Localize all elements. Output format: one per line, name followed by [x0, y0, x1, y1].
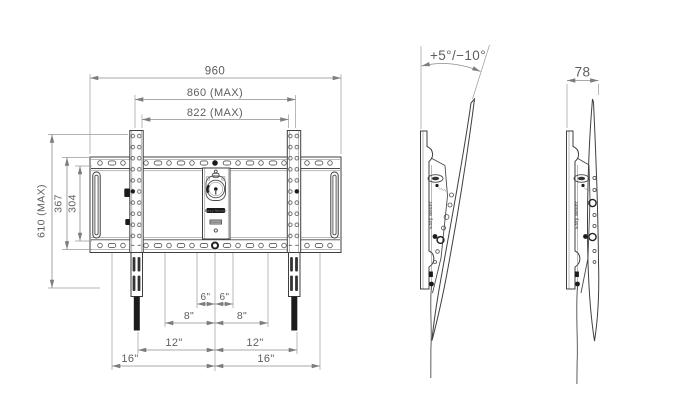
- center-lock-plate: Easy Mount: [203, 168, 231, 239]
- dim-depth: 78: [575, 65, 591, 80]
- left-arm-marked-hole: [131, 189, 135, 193]
- tv-bracket-blade-tilted: [432, 99, 475, 341]
- dim-inner-max-width: 822 (MAX): [187, 107, 243, 119]
- tilt-mechanism: Easy Mount: [428, 158, 454, 378]
- dim-tilt-angle: +5°/−10°: [430, 48, 486, 63]
- release-cord-straight: [577, 286, 578, 384]
- dim-inner-height: 304: [67, 194, 79, 213]
- side-view-straight: Easy Mount 78: [567, 65, 599, 385]
- dim-6in-right: 6": [220, 292, 230, 303]
- dim-12in-left: 12": [165, 337, 182, 349]
- tilt-angle-dimension: +5°/−10°: [421, 45, 490, 129]
- right-arm-rail-bar: [291, 297, 297, 331]
- right-arm: [287, 131, 300, 331]
- release-cord: [431, 286, 432, 378]
- wall-mount-drawing: Easy Mount 960 860 (MAX) 822 (MAX): [0, 0, 700, 417]
- dim-16in-left: 16": [121, 353, 138, 365]
- front-view: Easy Mount 960 860 (MAX) 822 (MAX): [36, 66, 342, 372]
- dim-16in-right: 16": [257, 353, 274, 365]
- brand-label-text: Easy Mount: [205, 209, 227, 213]
- dim-overall-height: 610 (MAX): [36, 184, 48, 238]
- left-arm-rail-bar: [134, 297, 140, 331]
- ratchet-teeth: [438, 188, 446, 192]
- left-arm-lower-tab: [125, 219, 130, 225]
- right-end-slot: [331, 172, 338, 238]
- right-arm-marked-hole: [295, 189, 299, 193]
- brand-text-side-straight: Easy Mount: [574, 201, 579, 229]
- technical-drawing-canvas: Easy Mount 960 860 (MAX) 822 (MAX): [0, 0, 700, 417]
- brand-text-side: Easy Mount: [428, 201, 433, 229]
- dim-8in-left: 8": [184, 310, 194, 322]
- warning-label: [210, 220, 223, 225]
- lock-latch: [429, 272, 433, 278]
- dim-6in-left: 6": [201, 292, 211, 303]
- dim-max-width: 860 (MAX): [187, 87, 243, 99]
- dim-overall-width: 960: [205, 66, 225, 78]
- left-arm-lock-tab: [124, 189, 130, 198]
- side-view-tilted: Easy Mount +5°/−10°: [421, 45, 490, 378]
- lock-latch-straight: [575, 272, 579, 278]
- dim-plate-height: 367: [53, 194, 65, 213]
- dim-8in-right: 8": [237, 310, 247, 322]
- left-end-slot: [93, 172, 100, 238]
- dim-12in-right: 12": [246, 337, 263, 349]
- top-rail-center-hole: [212, 160, 217, 165]
